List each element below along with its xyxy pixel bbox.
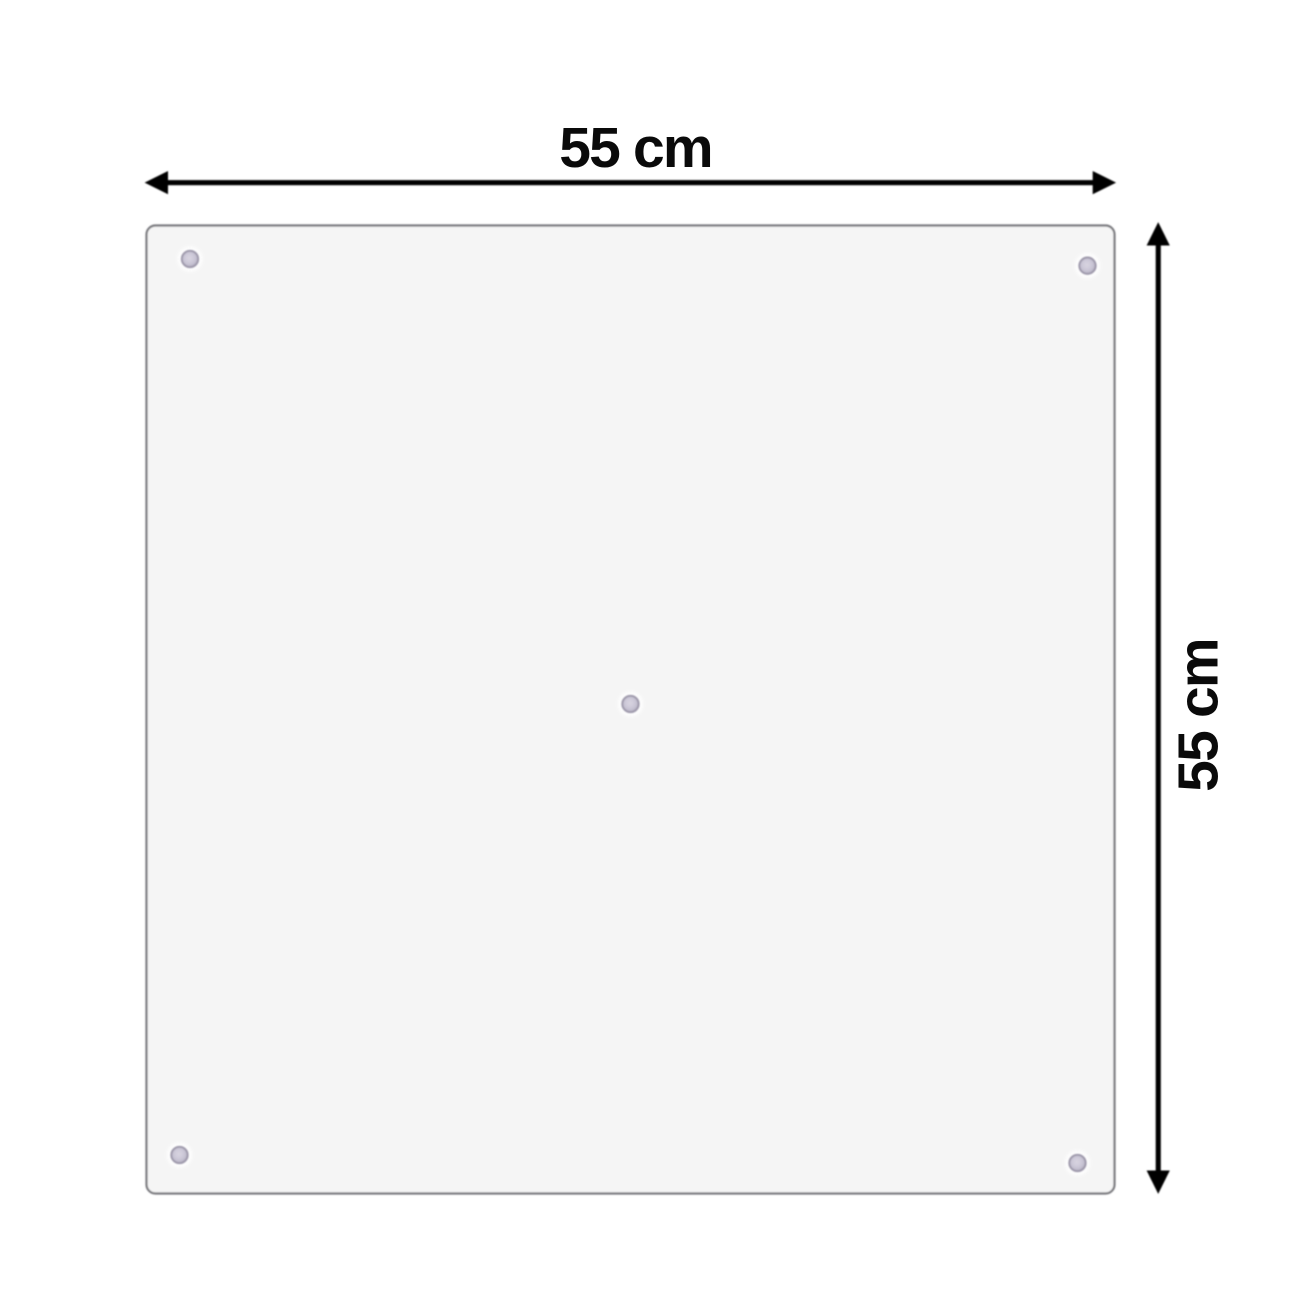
svg-text:55 cm: 55 cm <box>559 116 712 180</box>
svg-text:55 cm: 55 cm <box>1167 639 1231 792</box>
